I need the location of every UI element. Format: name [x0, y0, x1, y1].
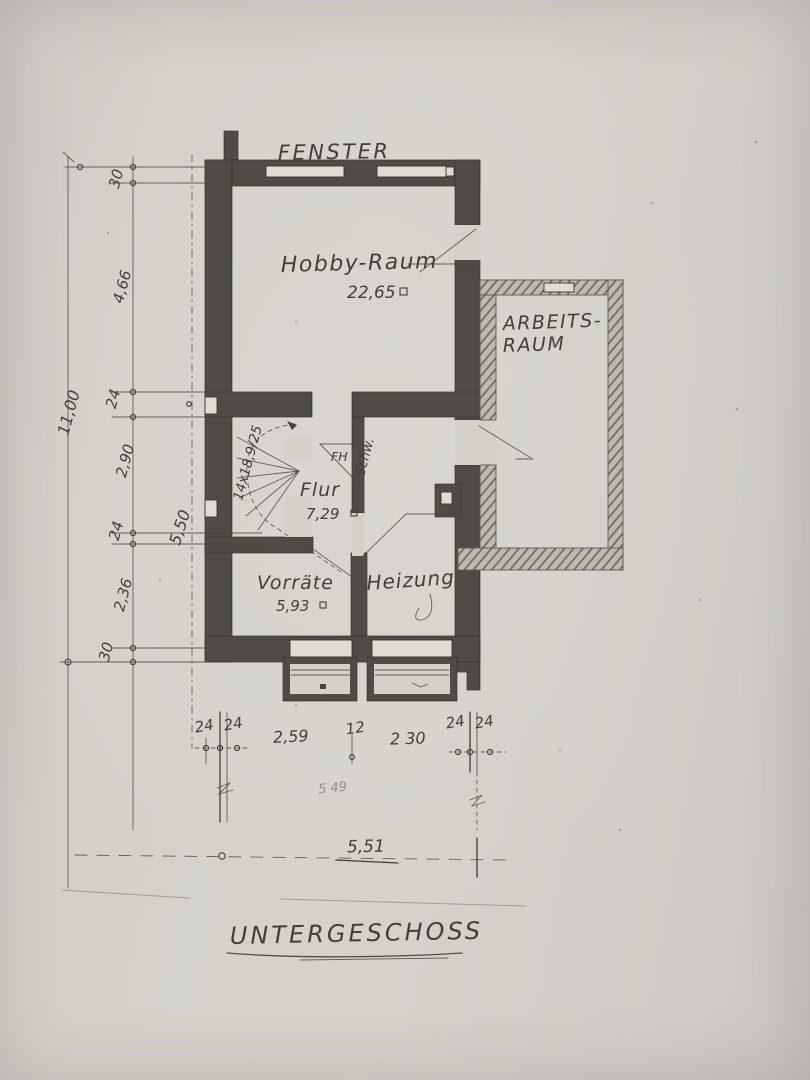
title-block: UNTERGESCHOSS — [227, 917, 483, 960]
chimney-flue — [441, 492, 452, 504]
stair-pillar-upper — [285, 437, 312, 460]
title-underline — [227, 953, 462, 957]
dim-left-5: 2,36 — [110, 576, 136, 613]
wall-top-stub — [224, 131, 238, 162]
room-area-hobby: 22,65 — [347, 283, 396, 303]
dim-tick — [219, 853, 225, 859]
annex-wall-bottom — [458, 548, 623, 570]
title-underline-echo — [300, 958, 448, 960]
wall-hobby-south-right — [352, 392, 480, 417]
dim-width-2: 2 30 — [390, 728, 426, 748]
light-well-right-inner — [374, 664, 450, 694]
wall-bottom-right-step — [455, 662, 480, 690]
window-top-right — [377, 166, 447, 177]
dim-left-3: 2,90 — [112, 442, 138, 479]
main-walls — [205, 131, 480, 690]
annex-wall-left-upper — [480, 295, 496, 420]
border-faint-left — [62, 890, 190, 898]
dim-total-underline — [336, 860, 398, 863]
room-label-vorraete: Vorräte — [257, 572, 334, 594]
border-faint-bottom — [280, 899, 526, 906]
heizung-flourish — [416, 594, 432, 620]
window-top-left — [266, 166, 344, 177]
page-title: UNTERGESCHOSS — [230, 917, 484, 950]
dim-tick — [187, 402, 192, 407]
annex-window — [544, 283, 574, 292]
dim-tick — [63, 152, 74, 162]
dim-squiggle — [470, 795, 485, 806]
window-top-small — [446, 167, 454, 176]
niche-left-lower — [205, 500, 217, 517]
window-label: FENSTER — [278, 139, 391, 165]
faint-note: 5 49 — [317, 780, 347, 798]
dim-bottom-total: 5,51 — [347, 837, 385, 858]
room-label-flur: Flur — [300, 479, 340, 501]
dim-left-0: 30 — [105, 167, 127, 190]
wall-hobby-south-left — [205, 392, 312, 417]
dim-left-1: 4,66 — [109, 268, 135, 305]
room-label-arbeits-1: ARBEITS- — [500, 310, 602, 336]
floorplan-drawing: 30 4,66 24 2,90 24 2,36 30 11,00 5,50 24… — [0, 0, 810, 1080]
annex-wall-right — [608, 280, 623, 570]
window-bottom-right — [372, 640, 452, 657]
dim-left-4: 24 — [105, 519, 127, 542]
light-wells — [283, 657, 457, 701]
room-area-flur: 7,29 — [306, 505, 339, 523]
wall-stair-vorraete — [205, 537, 313, 553]
room-area-vorraete: 5,93 — [276, 597, 309, 615]
dim-pair-left-1: 24 — [222, 714, 244, 735]
window-bottom-left — [290, 640, 352, 657]
dim-total-line — [75, 855, 512, 860]
dimension-bottom: 24 24 24 24 2,59 12 2 30 5 49 5,51 — [62, 712, 526, 906]
dim-stair-total: 5,50 — [165, 507, 194, 547]
door-fh-label: FH — [331, 449, 348, 464]
room-label-hobby: Hobby-Raum — [281, 249, 439, 278]
annex-wall-left-lower — [480, 465, 496, 548]
well-mark — [320, 684, 326, 689]
wall-right-upper — [455, 160, 480, 225]
door-leaf-heizung — [363, 514, 406, 556]
dim-left-total: 11,00 — [54, 388, 84, 437]
dim-pair-right-0: 24 — [444, 712, 466, 733]
niche-left-upper — [205, 397, 217, 414]
room-label-heizung: Heizung — [366, 565, 456, 595]
sqm-symbol — [400, 288, 407, 295]
scanned-floorplan-page: 30 4,66 24 2,90 24 2,36 30 11,00 5,50 24… — [0, 0, 810, 1080]
light-well-left-inner — [290, 664, 350, 694]
door-opening-heizung — [352, 513, 364, 556]
dim-width-0: 2,59 — [272, 726, 309, 747]
sqm-symbol — [320, 602, 326, 608]
dim-pair-left-0: 24 — [193, 716, 215, 737]
dim-left-6: 30 — [95, 640, 117, 663]
dim-pair-right-1: 24 — [473, 712, 495, 733]
dim-left-2: 24 — [102, 387, 124, 410]
dim-width-1: 12 — [345, 718, 366, 738]
door-opening-arbeitsraum — [455, 420, 496, 465]
room-label-arbeits-2: RAUM — [502, 333, 565, 357]
stair-direction-arrow — [287, 421, 297, 430]
